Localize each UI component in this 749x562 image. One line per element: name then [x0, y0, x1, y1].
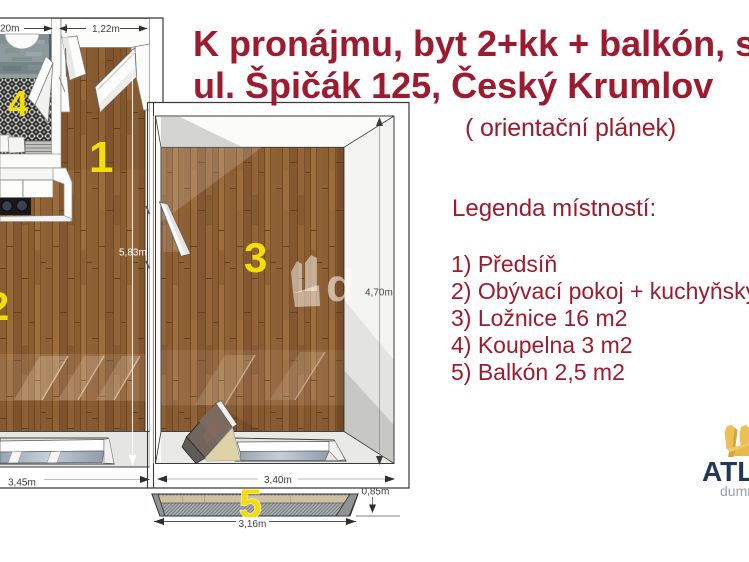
- svg-text:2) Obývací pokoj + kuchyňský k: 2) Obývací pokoj + kuchyňský kout: [451, 278, 749, 304]
- svg-text:Legenda místností:: Legenda místností:: [452, 195, 656, 222]
- svg-text:1,22m: 1,22m: [92, 24, 120, 35]
- svg-text:K pronájmu, byt 2+kk + balkón,: K pronájmu, byt 2+kk + balkón, s: [193, 23, 749, 64]
- svg-text:d: d: [326, 259, 354, 311]
- svg-text:0,85m: 0,85m: [362, 487, 390, 498]
- svg-text:3) Ložnice 16 m2: 3) Ložnice 16 m2: [451, 305, 627, 331]
- svg-text:20m: 20m: [0, 24, 19, 35]
- svg-text:5) Balkón 2,5 m2: 5) Balkón 2,5 m2: [451, 359, 625, 385]
- svg-text:1) Předsíň: 1) Předsíň: [451, 251, 557, 277]
- svg-text:ul. Špičák 125, Český Krumlov: ul. Špičák 125, Český Krumlov: [193, 64, 713, 106]
- svg-text:5,83m: 5,83m: [119, 248, 147, 259]
- svg-text:3: 3: [244, 234, 267, 281]
- svg-text:4,70m: 4,70m: [365, 288, 393, 299]
- svg-text:3,16m: 3,16m: [239, 519, 267, 530]
- svg-text:2: 2: [0, 285, 9, 329]
- svg-text:4: 4: [8, 83, 28, 124]
- svg-text:dumrealit: dumrealit: [720, 483, 749, 499]
- svg-text:1: 1: [89, 133, 113, 182]
- svg-text:3,45m: 3,45m: [8, 478, 36, 489]
- svg-text:3,40m: 3,40m: [264, 475, 292, 486]
- svg-text:4) Koupelna 3 m2: 4) Koupelna 3 m2: [451, 332, 633, 358]
- svg-text:( orientační plánek): ( orientační plánek): [465, 114, 676, 142]
